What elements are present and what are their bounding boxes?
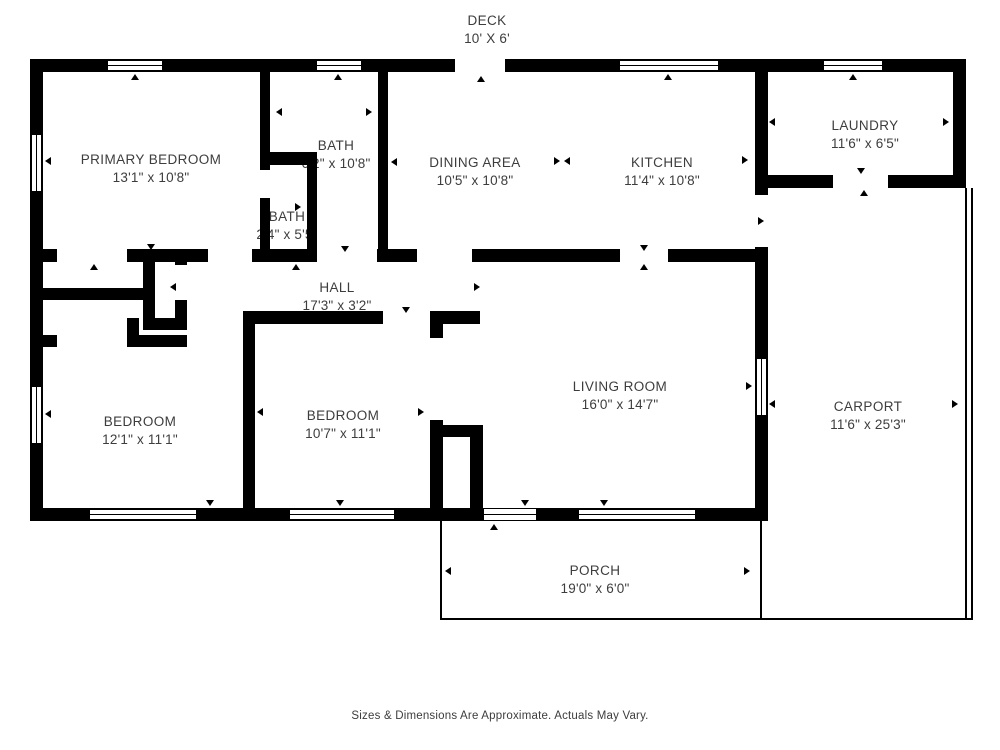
arrow-marker-icon [849,74,857,80]
arrow-marker-icon [418,408,424,416]
room-dims: 11'6" x 6'5" [775,135,955,153]
boundary-line [965,188,967,620]
wall [470,437,483,508]
arrow-marker-icon [336,500,344,506]
arrow-marker-icon [391,158,397,166]
window [88,508,198,521]
room-dims: 12'1" x 11'1" [50,431,230,449]
room-name: HALL [247,279,427,297]
wall [755,59,768,195]
wall [127,249,208,262]
arrow-marker-icon [664,74,672,80]
room-name: KITCHEN [572,154,752,172]
wall [243,311,383,324]
room-name: DECK [427,12,547,30]
arrow-marker-icon [490,524,498,530]
disclaimer-text: Sizes & Dimensions Are Approximate. Actu… [0,710,1000,722]
room-dims: 13'1" x 10'8" [51,169,251,187]
room-dims: 10' X 6' [427,30,547,48]
room-dims: 11'4" x 10'8" [572,172,752,190]
room-name: PORCH [505,562,685,580]
room-dims: 2'4" x 5'5" [227,226,347,244]
window [30,133,43,193]
room-label-bath-lower: BATH 2'4" x 5'5" [227,208,347,244]
arrow-marker-icon [600,500,608,506]
room-dims: 16'0" x 14'7" [530,396,710,414]
arrow-marker-icon [477,76,485,82]
door-opening [455,59,505,72]
wall [30,335,57,347]
room-label-bedroom-left: BEDROOM 12'1" x 11'1" [50,413,230,449]
arrow-marker-icon [758,217,764,225]
room-dims: 10'7" x 11'1" [253,425,433,443]
room-dims: 19'0" x 6'0" [505,580,685,598]
window [315,59,363,72]
arrow-marker-icon [952,400,958,408]
arrow-marker-icon [90,264,98,270]
arrow-marker-icon [744,567,750,575]
room-name: DINING AREA [385,154,565,172]
wall [768,175,833,188]
arrow-marker-icon [147,244,155,250]
arrow-marker-icon [206,500,214,506]
window [822,59,884,72]
window [106,59,164,72]
arrow-marker-icon [860,190,868,196]
arrow-marker-icon [746,382,752,390]
wall [268,152,317,165]
wall [175,249,187,265]
wall [30,249,57,262]
arrow-marker-icon [257,408,263,416]
boundary-line [760,521,762,620]
room-label-laundry: LAUNDRY 11'6" x 6'5" [775,117,955,153]
arrow-marker-icon [45,410,51,418]
wall [888,175,966,188]
arrow-marker-icon [474,283,480,291]
room-label-living-room: LIVING ROOM 16'0" x 14'7" [530,378,710,414]
arrow-marker-icon [769,118,775,126]
wall [127,335,187,347]
wall [472,249,620,262]
wall [430,311,480,324]
window [30,385,43,445]
room-label-carport: CARPORT 11'6" x 25'3" [778,398,958,434]
room-label-bedroom-middle: BEDROOM 10'7" x 11'1" [253,407,433,443]
arrow-marker-icon [170,283,176,291]
room-label-dining: DINING AREA 10'5" x 10'8" [385,154,565,190]
room-label-primary-bedroom: PRIMARY BEDROOM 13'1" x 10'8" [51,151,251,187]
window [288,508,396,521]
room-label-kitchen: KITCHEN 11'4" x 10'8" [572,154,752,190]
arrow-marker-icon [276,108,282,116]
floor-plan: DECK 10' X 6' PRIMARY BEDROOM 13'1" x 10… [0,0,1000,750]
room-dims: 11'6" x 25'3" [778,416,958,434]
arrow-marker-icon [857,168,865,174]
arrow-marker-icon [640,245,648,251]
room-name: BEDROOM [253,407,433,425]
boundary-line [971,188,973,620]
arrow-marker-icon [445,567,451,575]
wall [430,324,443,338]
wall [307,165,317,262]
sliding-door [483,508,537,521]
room-name: CARPORT [778,398,958,416]
arrow-marker-icon [131,74,139,80]
wall [953,59,966,188]
boundary-line [440,521,442,620]
wall [377,249,417,262]
arrow-marker-icon [45,157,51,165]
wall [143,318,187,330]
arrow-marker-icon [521,500,529,506]
arrow-marker-icon [292,264,300,270]
arrow-marker-icon [334,74,342,80]
wall [668,249,755,262]
arrow-marker-icon [402,307,410,313]
arrow-marker-icon [366,108,372,116]
wall [378,72,388,262]
wall [38,288,155,300]
room-label-porch: PORCH 19'0" x 6'0" [505,562,685,598]
arrow-marker-icon [564,157,570,165]
room-dims: 10'5" x 10'8" [385,172,565,190]
wall [430,425,483,437]
window [618,59,720,72]
arrow-marker-icon [554,157,560,165]
wall [243,311,255,521]
room-name: BEDROOM [50,413,230,431]
window [755,357,768,417]
arrow-marker-icon [341,246,349,252]
arrow-marker-icon [264,203,270,211]
arrow-marker-icon [640,264,648,270]
arrow-marker-icon [295,203,301,211]
window [577,508,697,521]
room-name: BATH [227,208,347,226]
room-name: LIVING ROOM [530,378,710,396]
room-label-deck: DECK 10' X 6' [427,12,547,48]
boundary-line [440,618,973,620]
arrow-marker-icon [943,118,949,126]
room-name: PRIMARY BEDROOM [51,151,251,169]
room-label-hall: HALL 17'3" x 3'2" [247,279,427,315]
room-name: LAUNDRY [775,117,955,135]
arrow-marker-icon [769,400,775,408]
arrow-marker-icon [742,156,748,164]
wall [252,249,317,262]
